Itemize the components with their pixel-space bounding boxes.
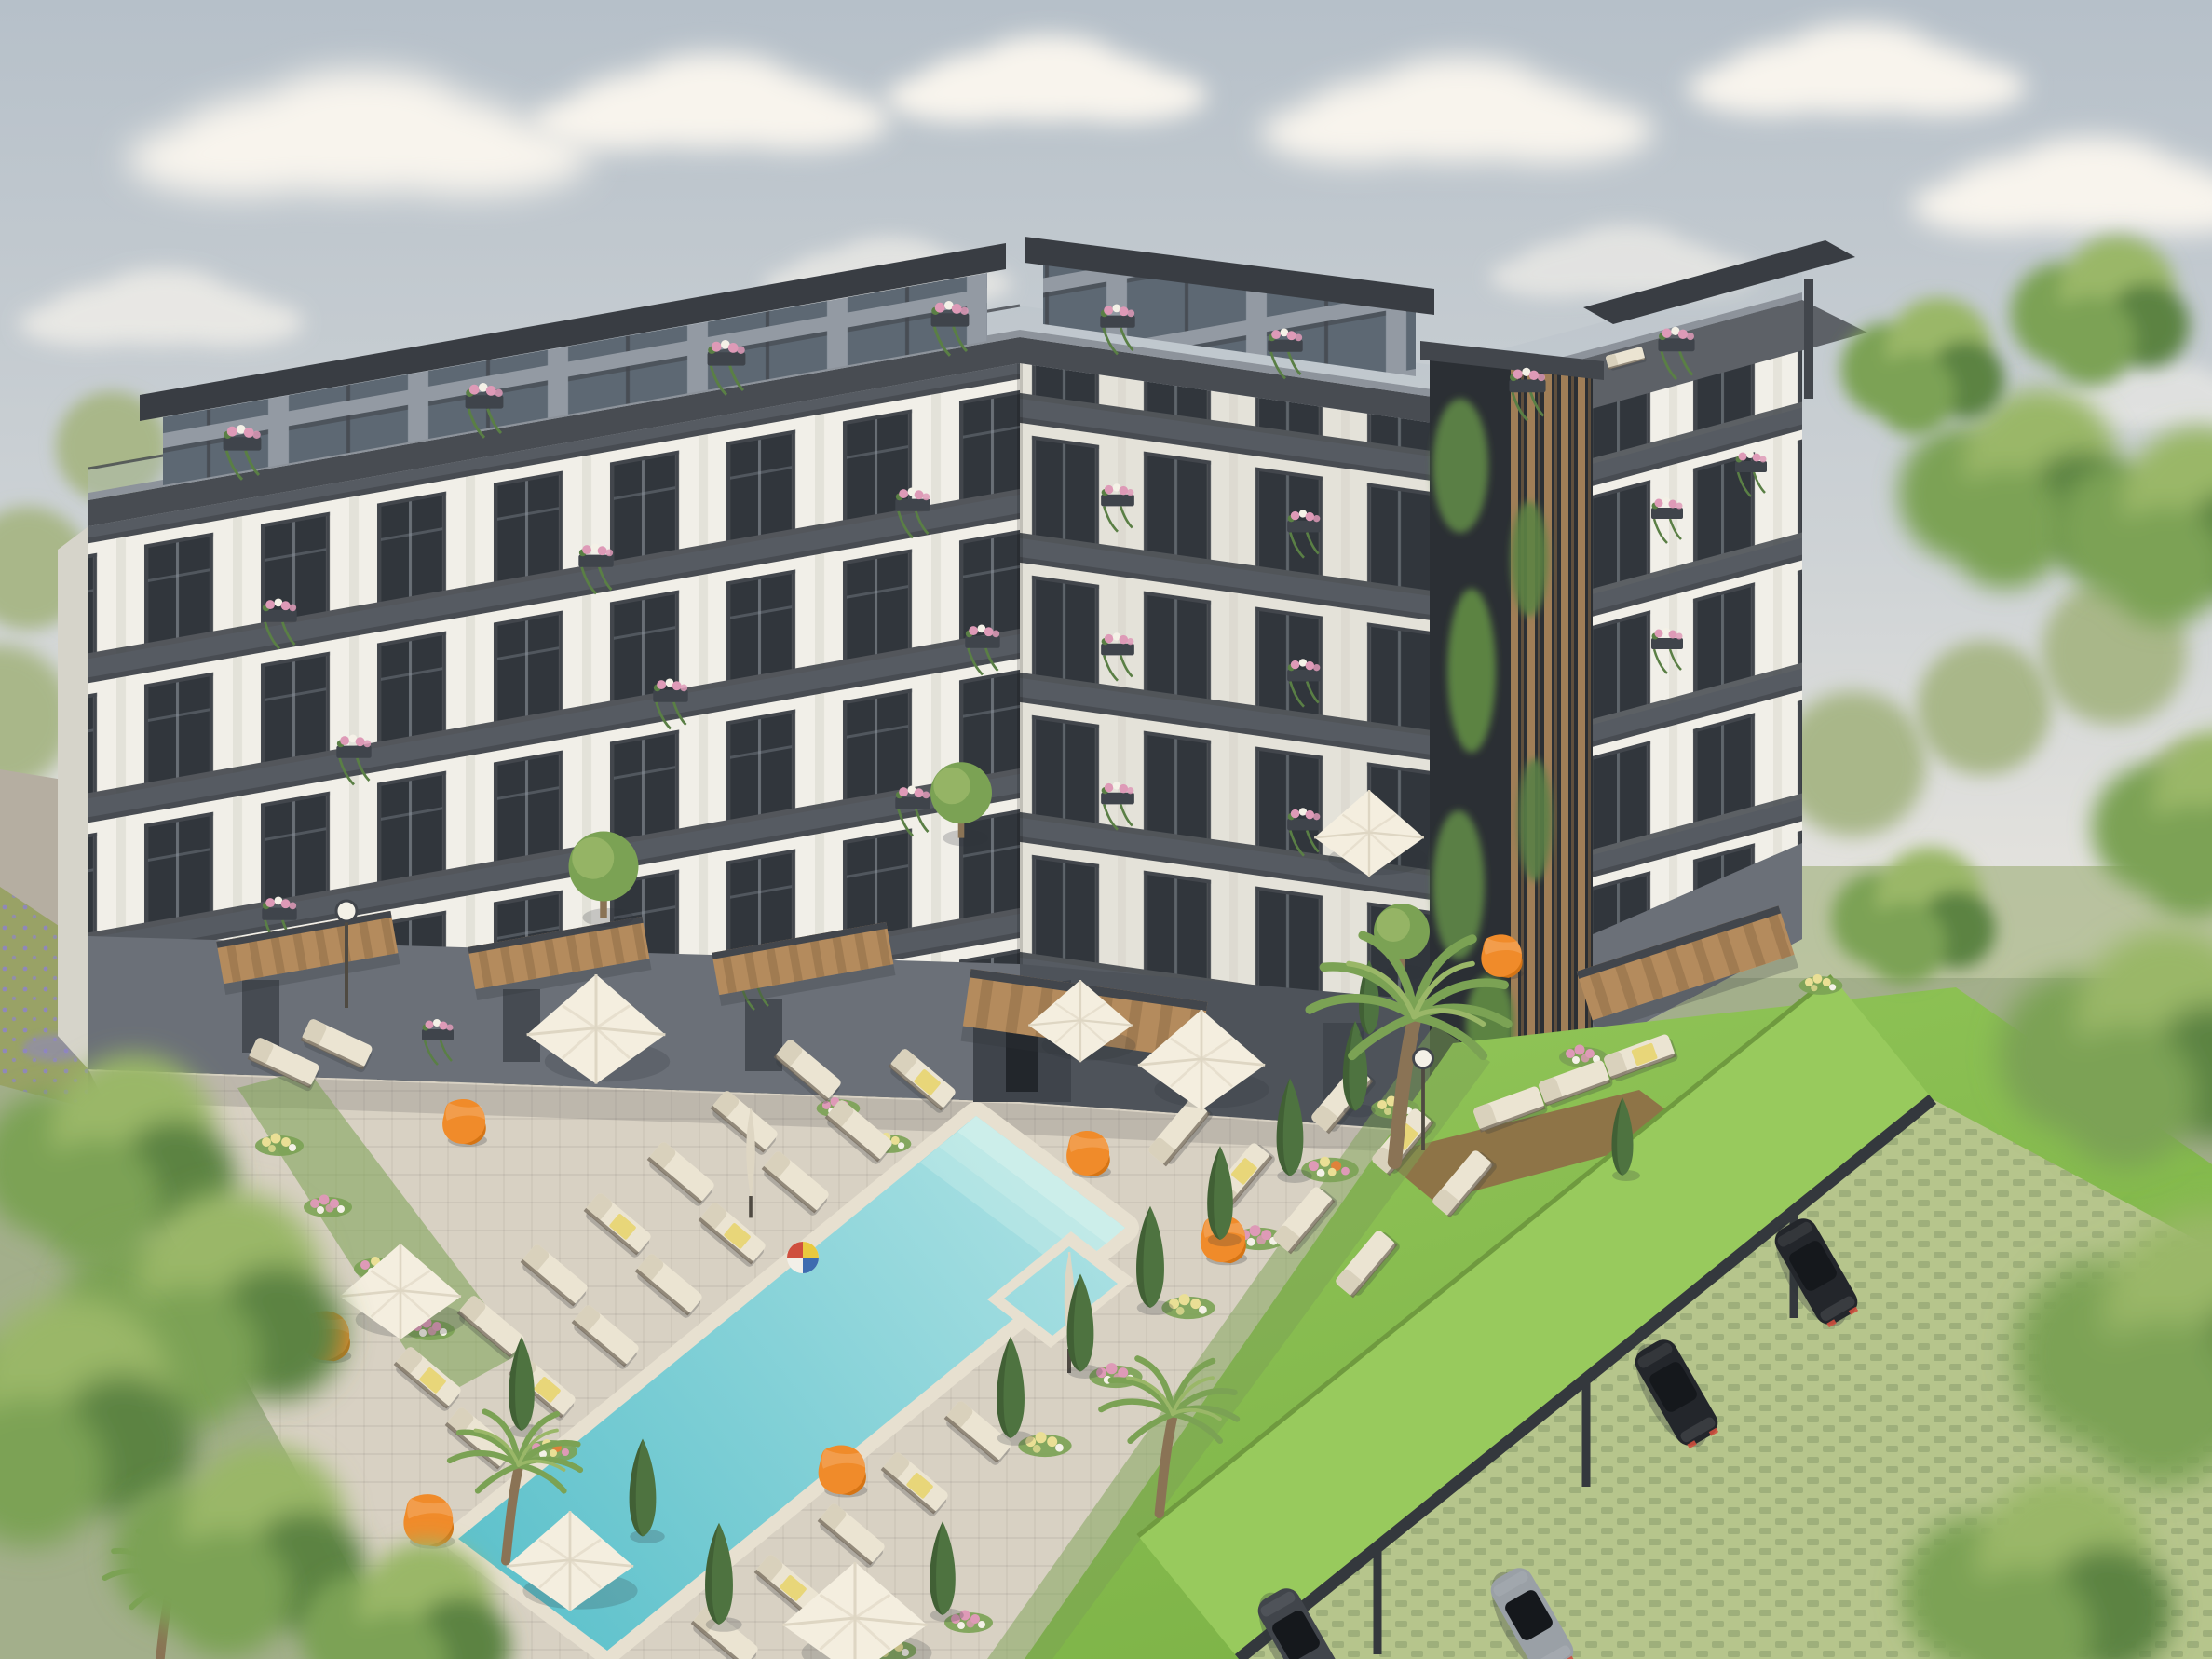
bean-bag: [403, 1494, 455, 1549]
bean-bag: [442, 1099, 487, 1147]
beach-ball: [787, 1242, 819, 1273]
bean-bag: [1481, 934, 1523, 979]
tree: [1917, 641, 2051, 775]
wood-slats: [1507, 365, 1593, 1129]
bean-bag: [1066, 1131, 1111, 1178]
tree: [1781, 691, 1926, 836]
left-side-return: [58, 526, 88, 1069]
apartment-building: [58, 237, 1867, 1155]
rendering-stage: [0, 0, 2212, 1659]
bean-bag: [819, 1445, 868, 1497]
architectural-rendering: [0, 0, 2212, 1659]
